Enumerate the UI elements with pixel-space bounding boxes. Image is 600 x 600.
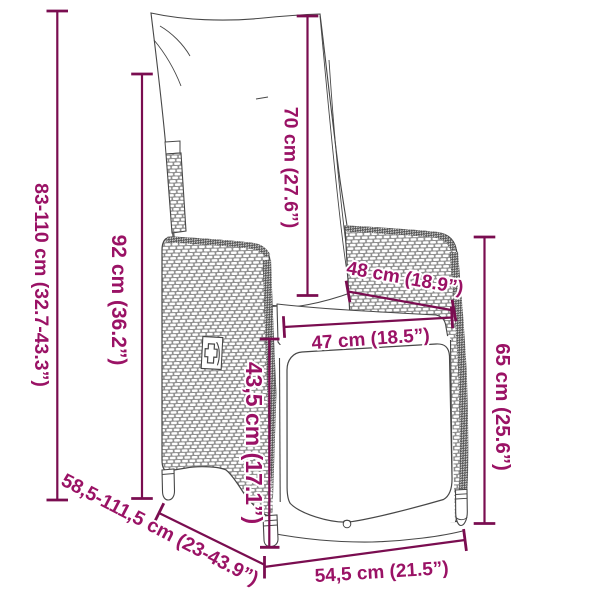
svg-text:65 cm (25.6”): 65 cm (25.6”) [491, 343, 514, 471]
svg-text:83-110 cm (32.7-43.3”): 83-110 cm (32.7-43.3”) [30, 183, 52, 387]
svg-text:92 cm (36.2”): 92 cm (36.2”) [107, 235, 130, 366]
svg-text:43,5 cm (17.1”): 43,5 cm (17.1”) [241, 362, 267, 524]
svg-text:70 cm (27.6”): 70 cm (27.6”) [280, 107, 302, 228]
